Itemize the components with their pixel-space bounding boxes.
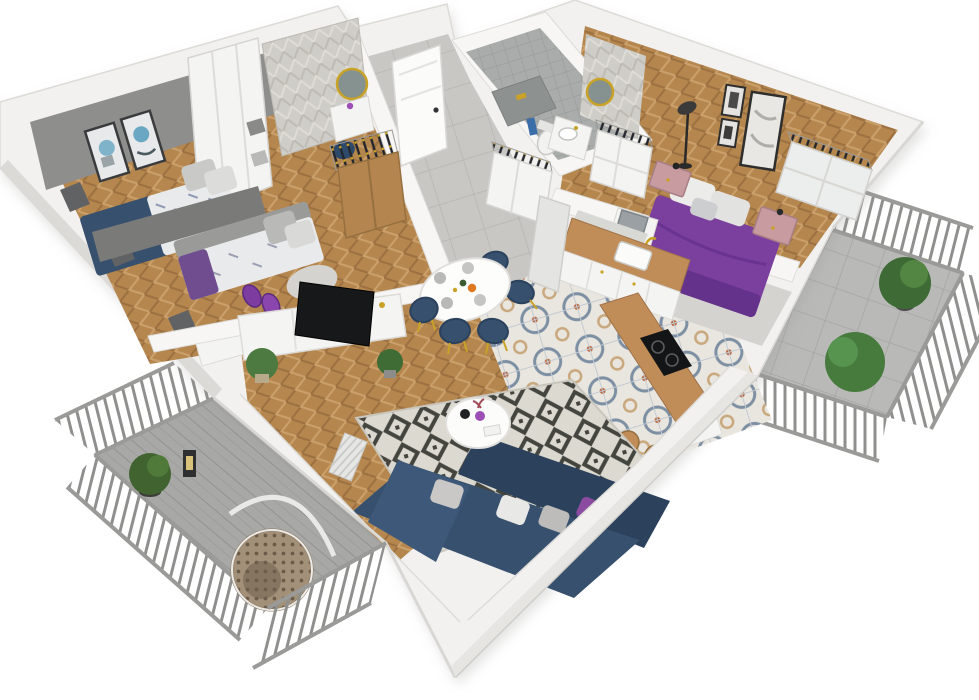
bathroom-round-mirror bbox=[587, 79, 613, 105]
plate-2 bbox=[462, 262, 474, 274]
vanity-sink bbox=[559, 128, 577, 140]
plate-3 bbox=[441, 297, 453, 309]
front-door-leaf bbox=[392, 45, 447, 166]
plant-basket bbox=[384, 370, 396, 378]
console-purple-vase bbox=[347, 103, 353, 109]
plant-basket bbox=[255, 374, 269, 383]
egg-chair-cushion bbox=[243, 561, 281, 599]
render-canvas bbox=[0, 0, 979, 700]
flat-tv bbox=[295, 282, 374, 346]
front-door bbox=[392, 45, 447, 166]
gold-candle bbox=[453, 288, 457, 292]
coffee-table bbox=[446, 398, 510, 448]
orange-flowers bbox=[468, 284, 476, 292]
gold-handle-1 bbox=[600, 270, 603, 273]
plant-foliage-light bbox=[828, 337, 858, 367]
black-bowl bbox=[460, 409, 470, 419]
gold-knob bbox=[771, 226, 775, 230]
entry-round-mirror bbox=[337, 69, 367, 99]
gold-handle-2 bbox=[632, 282, 635, 285]
door-handle bbox=[433, 107, 438, 112]
green-bottle bbox=[460, 280, 467, 287]
lantern-glass bbox=[186, 456, 193, 470]
clock-black bbox=[673, 163, 680, 170]
plate-4 bbox=[474, 294, 486, 306]
apartment-render bbox=[0, 0, 979, 700]
faucet-gold bbox=[574, 126, 578, 130]
plant-foliage-light bbox=[147, 455, 169, 477]
plant-foliage-light bbox=[900, 260, 928, 288]
balcony-left-lantern bbox=[183, 450, 196, 477]
console-gold-cup bbox=[379, 302, 385, 308]
plate-1 bbox=[434, 272, 446, 284]
gold-knob bbox=[666, 178, 670, 182]
purple-vase bbox=[475, 411, 485, 421]
lamp-small-black bbox=[777, 209, 783, 215]
balcony-right-plant-2 bbox=[825, 332, 885, 392]
